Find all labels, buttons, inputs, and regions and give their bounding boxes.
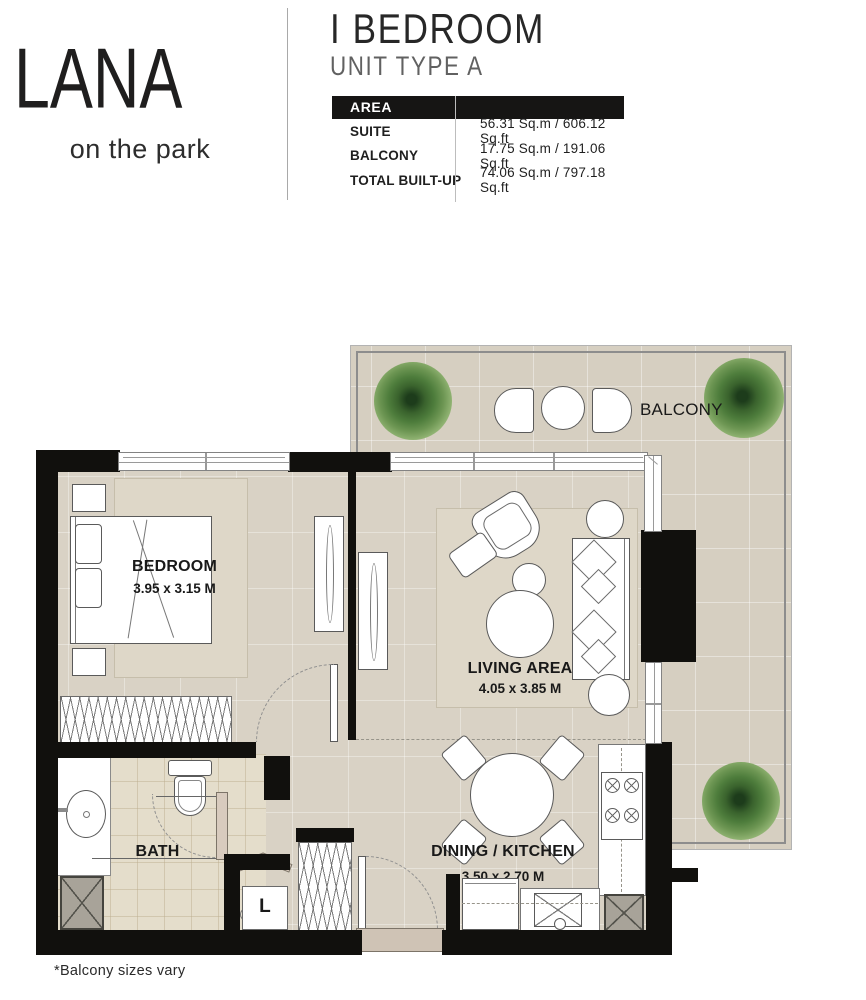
dining-label: DINING / KITCHEN bbox=[408, 843, 598, 861]
tv-console bbox=[358, 552, 388, 670]
nightstand bbox=[72, 484, 106, 512]
faucet-icon bbox=[554, 918, 566, 930]
bath-label: BATH bbox=[110, 843, 205, 861]
wall-segment bbox=[224, 868, 240, 932]
dresser bbox=[314, 516, 344, 632]
stove-burner-icon bbox=[605, 808, 620, 823]
wall-segment bbox=[296, 828, 354, 842]
wash-basin bbox=[66, 790, 106, 838]
dining-table bbox=[470, 753, 554, 837]
wall-segment bbox=[36, 930, 362, 955]
entry-door-leaf bbox=[358, 856, 366, 930]
side-table bbox=[586, 500, 624, 538]
balcony-table bbox=[541, 386, 585, 430]
bed-fold-line bbox=[133, 520, 174, 638]
wall-segment bbox=[442, 930, 672, 955]
palm-plant-icon bbox=[374, 362, 452, 440]
counter-centerline bbox=[462, 903, 598, 904]
wall-segment bbox=[56, 742, 256, 758]
stove-burner-icon bbox=[605, 778, 620, 793]
bed-fold-line bbox=[128, 520, 148, 639]
pillow bbox=[75, 568, 102, 608]
console-mirror bbox=[370, 563, 378, 661]
wall-segment bbox=[646, 742, 672, 955]
coffee-table bbox=[486, 590, 554, 658]
balcony-label: BALCONY bbox=[640, 400, 760, 420]
wall-segment bbox=[672, 868, 698, 882]
stove-burner-icon bbox=[624, 778, 639, 793]
balcony-chair bbox=[494, 388, 534, 433]
palm-plant-icon bbox=[704, 358, 784, 438]
basin-faucet-icon bbox=[58, 808, 68, 812]
kitchen-cabinet bbox=[462, 878, 519, 930]
stove-burner-icon bbox=[624, 808, 639, 823]
dresser-mirror bbox=[326, 525, 334, 623]
kitchen-sink bbox=[534, 893, 582, 927]
bedroom-dims: 3.95 x 3.15 M bbox=[102, 581, 247, 596]
service-shaft bbox=[60, 876, 104, 930]
footnote: *Balcony sizes vary bbox=[54, 963, 185, 979]
wardrobe bbox=[60, 696, 232, 743]
window bbox=[644, 455, 662, 532]
bedroom-label: BEDROOM bbox=[102, 558, 247, 576]
living-label: LIVING AREA bbox=[430, 660, 610, 678]
floor-plan: BALCONY BEDROOM 3.95 x 3.15 M bbox=[0, 0, 866, 1000]
zone-separator bbox=[356, 739, 646, 740]
nightstand bbox=[72, 648, 106, 676]
sofa-back-line bbox=[624, 539, 625, 679]
service-shaft bbox=[604, 894, 644, 932]
pillow bbox=[75, 524, 102, 564]
window bbox=[390, 452, 648, 471]
palm-plant-icon bbox=[702, 762, 780, 840]
cabinet-line bbox=[465, 883, 516, 884]
brochure-page: LANA on the park I BEDROOM UNIT TYPE A A… bbox=[0, 0, 866, 1000]
coat-closet bbox=[298, 842, 352, 932]
laundry-label: L bbox=[242, 896, 288, 918]
wall-segment bbox=[446, 874, 460, 930]
window bbox=[645, 662, 662, 744]
window bbox=[118, 452, 290, 471]
living-dims: 4.05 x 3.85 M bbox=[430, 681, 610, 696]
wall-segment bbox=[348, 468, 356, 740]
entry-threshold bbox=[356, 928, 444, 952]
wall-segment bbox=[288, 452, 392, 472]
basin-drain bbox=[83, 811, 90, 818]
shower-door-leaf bbox=[216, 792, 228, 860]
wall-segment bbox=[264, 756, 290, 800]
structural-column bbox=[641, 530, 696, 662]
wall-segment bbox=[36, 450, 58, 955]
toilet-tank bbox=[168, 760, 212, 776]
